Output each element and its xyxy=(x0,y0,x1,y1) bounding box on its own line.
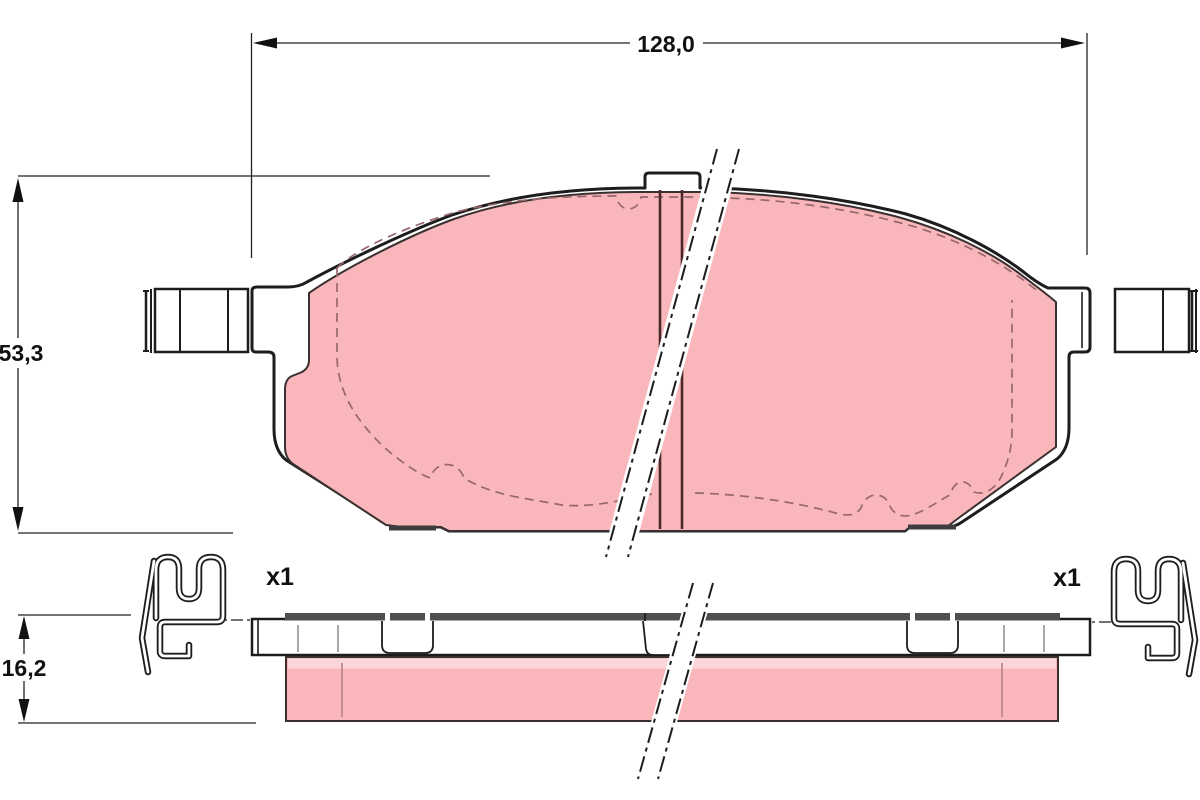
dimension-width: 128,0 xyxy=(253,31,1085,57)
width-dimension-label: 128,0 xyxy=(637,31,695,57)
guide-sleeve-left xyxy=(143,289,248,353)
arrowhead-up xyxy=(13,178,24,202)
thickness-dimension-label: 16,2 xyxy=(2,655,47,681)
arrowhead-up xyxy=(19,616,30,639)
shim-notch xyxy=(425,612,430,621)
sleeve-body xyxy=(1115,289,1189,352)
technical-drawing-canvas: 128,0 53,3 16,2 x1 x1 xyxy=(0,0,1200,800)
retaining-clip-left xyxy=(142,557,223,672)
stamped-tab-left xyxy=(382,621,433,653)
brake-pad-drawing: 128,0 53,3 16,2 x1 x1 xyxy=(0,0,1200,800)
clip-wire-core xyxy=(156,557,223,656)
shim-band xyxy=(285,613,1060,621)
arrowhead-right xyxy=(1061,38,1085,49)
shim-notch xyxy=(950,612,955,621)
clip-quantity-right: x1 xyxy=(1053,564,1081,592)
clip-wire-core xyxy=(1114,559,1181,658)
arrowhead-left xyxy=(253,38,277,49)
guide-sleeve-right xyxy=(1115,289,1198,353)
dimension-height: 53,3 xyxy=(0,178,43,531)
retaining-clip-right xyxy=(1114,559,1195,674)
side-view xyxy=(224,582,1118,780)
clip-quantity-left: x1 xyxy=(266,563,294,591)
sleeve-body xyxy=(155,289,248,352)
arrowhead-down xyxy=(13,507,24,531)
shim-notch xyxy=(385,612,390,621)
stamped-tab-right xyxy=(907,621,958,653)
clip-wire-outline xyxy=(1114,559,1181,658)
shim-notch xyxy=(910,612,915,621)
front-view xyxy=(143,147,1198,559)
arrowhead-down xyxy=(19,699,30,722)
clip-wire-outline xyxy=(156,557,223,656)
dimension-thickness: 16,2 xyxy=(2,616,47,722)
height-dimension-label: 53,3 xyxy=(0,340,43,366)
